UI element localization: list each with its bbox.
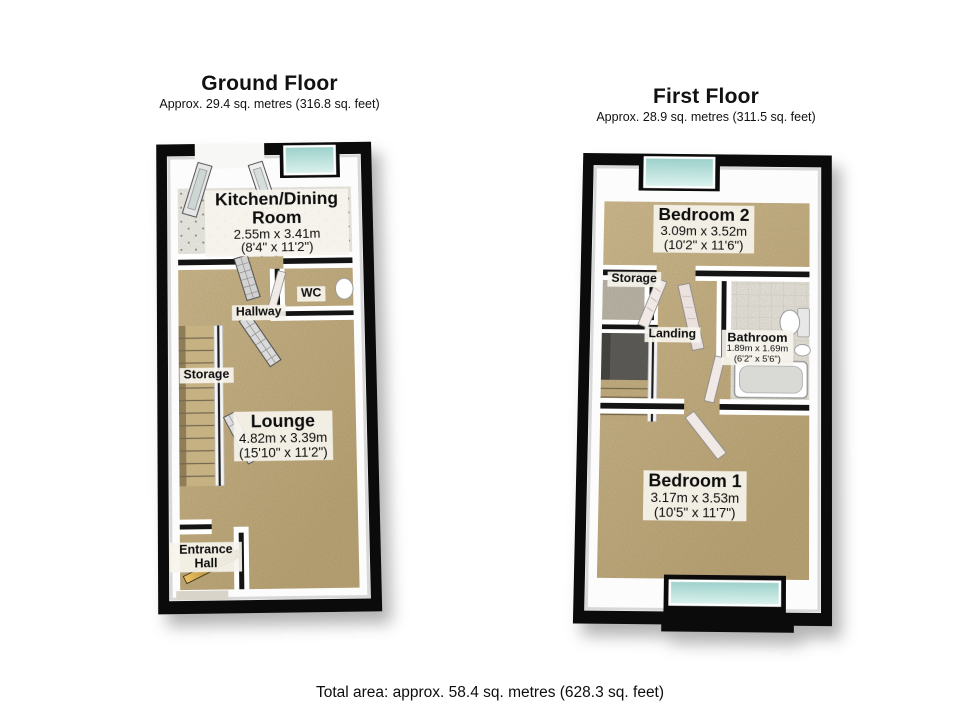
wc-name: WC [301, 287, 322, 300]
ground-floor-plan: Kitchen/Dining Room 2.55m x 3.41m (8'4" … [150, 134, 388, 622]
bedroom1-imperial: (10'5" x 11'7") [648, 505, 742, 521]
entrance-hall-name: Entrance Hall [174, 543, 238, 571]
ground-floor-subtitle: Approx. 29.4 sq. metres (316.8 sq. feet) [152, 97, 387, 112]
first-storage-name: Storage [611, 273, 657, 286]
bedroom2-label: Bedroom 2 3.09m x 3.52m (10'2" x 11'6") [653, 205, 754, 254]
ground-floor-title: Ground Floor [152, 72, 387, 96]
ground-window [280, 142, 340, 178]
lounge-label: Lounge 4.82m x 3.39m (15'10" x 11'2") [234, 410, 333, 461]
first-storage-label: Storage [607, 272, 660, 287]
floorplan-canvas: Ground Floor Approx. 29.4 sq. metres (31… [0, 0, 980, 712]
total-area-text: Total area: approx. 58.4 sq. metres (628… [0, 684, 980, 702]
bedroom2-window [644, 157, 714, 187]
bedroom1-label: Bedroom 1 3.17m x 3.53m (10'5" x 11'7") [643, 470, 747, 521]
first-floor-title: First Floor [566, 85, 846, 109]
first-floor-plan: Bedroom 2 3.09m x 3.52m (10'2" x 11'6") … [565, 147, 846, 635]
lounge-imperial: (15'10" x 11'2") [239, 445, 328, 461]
kitchen-name: Kitchen/Dining Room [210, 190, 344, 229]
bedroom2-name: Bedroom 2 [658, 206, 749, 225]
ground-storage-name: Storage [183, 368, 229, 382]
hallway-label: Hallway [232, 305, 286, 321]
first-floor-subtitle: Approx. 28.9 sq. metres (311.5 sq. feet) [566, 110, 846, 125]
bathroom-imperial: (6'2" x 5'6") [726, 354, 788, 365]
bathroom-sink [795, 344, 811, 356]
kitchen-imperial: (8'4" x 11'2") [210, 240, 344, 256]
ground-floor-section: Ground Floor Approx. 29.4 sq. metres (31… [152, 72, 387, 621]
landing-label: Landing [644, 327, 700, 343]
wc-label: WC [297, 286, 325, 301]
kitchen-label: Kitchen/Dining Room 2.55m x 3.41m (8'4" … [205, 189, 350, 258]
bedroom1-window [670, 581, 780, 606]
ground-staircase [179, 325, 225, 486]
bedroom2-imperial: (10'2" x 11'6") [658, 238, 749, 253]
entrance-hall-label: Entrance Hall [170, 542, 242, 572]
front-door-sill [176, 590, 228, 600]
first-floor-section: First Floor Approx. 28.9 sq. metres (311… [566, 85, 846, 634]
bedroom1-name: Bedroom 1 [648, 471, 741, 491]
landing-name: Landing [648, 328, 696, 342]
lounge-name: Lounge [239, 412, 328, 432]
wc-toilet [335, 278, 353, 299]
hallway-name: Hallway [236, 306, 282, 320]
ground-storage-label: Storage [180, 367, 234, 383]
bathroom-label: Bathroom 1.89m x 1.69m (6'2" x 5'6") [722, 330, 794, 366]
